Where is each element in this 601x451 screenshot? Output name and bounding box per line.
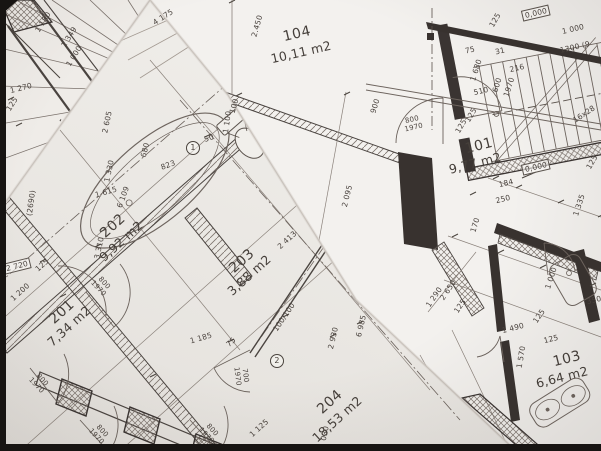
blueprint-photo: 2.450 900 2 095 100 125 75 31 216 1 680 …: [0, 0, 601, 451]
photo-border-corner: [0, 0, 18, 16]
photo-border-left: [0, 0, 6, 451]
photo-border-bottom: [0, 444, 601, 451]
floor-plan-svg: [0, 0, 601, 451]
